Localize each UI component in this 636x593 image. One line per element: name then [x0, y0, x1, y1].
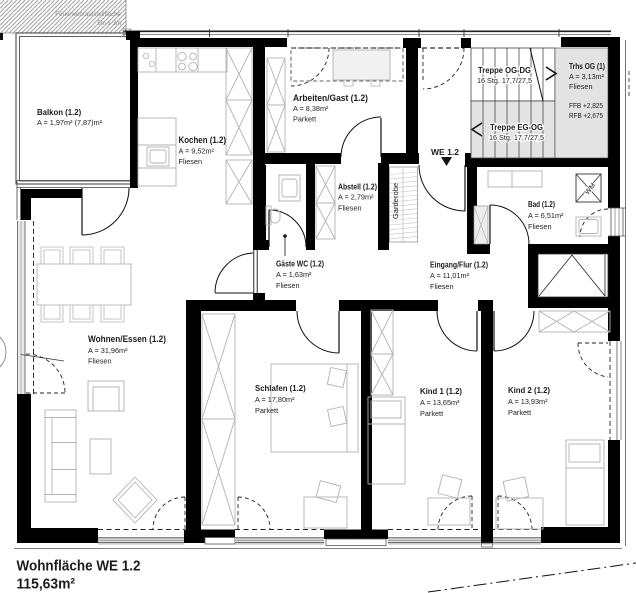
svg-text:Garderobe: Garderobe: [391, 183, 400, 219]
svg-text:A = 13,93m²: A = 13,93m²: [508, 397, 548, 406]
svg-text:Wohnen/Essen (1.2): Wohnen/Essen (1.2): [88, 334, 166, 345]
svg-text:Balkon (1.2): Balkon (1.2): [37, 108, 82, 117]
svg-text:Parkett: Parkett: [293, 115, 316, 124]
svg-text:Fliesen: Fliesen: [276, 281, 300, 290]
svg-text:Trhs OG (1): Trhs OG (1): [569, 62, 605, 71]
svg-text:A = 17,80m²: A = 17,80m²: [255, 395, 295, 404]
svg-text:Parkett: Parkett: [255, 406, 278, 415]
svg-text:Parkett: Parkett: [420, 409, 443, 418]
svg-text:Fliesen: Fliesen: [88, 357, 112, 366]
svg-text:16 Stg. 17,7/27,5: 16 Stg. 17,7/27,5: [489, 133, 544, 142]
svg-text:A = 2,79m²: A = 2,79m²: [338, 193, 374, 202]
svg-text:A = 1,63m²: A = 1,63m²: [276, 270, 312, 279]
svg-text:A = 8,38m²: A = 8,38m²: [293, 104, 329, 113]
svg-text:Treppe EG-OG: Treppe EG-OG: [490, 123, 543, 132]
svg-text:A = 13,65m²: A = 13,65m²: [420, 398, 460, 407]
svg-text:Kind 2 (1.2): Kind 2 (1.2): [508, 386, 550, 395]
svg-text:Fliesen: Fliesen: [569, 82, 593, 91]
svg-text:16 Stg. 17,7/27,5: 16 Stg. 17,7/27,5: [477, 76, 532, 85]
svg-text:A = 6,51m²: A = 6,51m²: [528, 211, 564, 220]
svg-text:Arbeiten/Gast (1.2): Arbeiten/Gast (1.2): [293, 93, 368, 104]
svg-text:Kind 1 (1.2): Kind 1 (1.2): [420, 387, 462, 396]
svg-text:Parkett: Parkett: [508, 408, 531, 417]
svg-text:Gäste WC (1.2): Gäste WC (1.2): [276, 260, 324, 269]
svg-text:5m x 3m: 5m x 3m: [97, 20, 121, 27]
svg-text:Eingang/Flur (1.2): Eingang/Flur (1.2): [430, 261, 488, 270]
svg-text:Fliesen: Fliesen: [528, 222, 552, 231]
svg-text:Feuerwehraufstellfläche: Feuerwehraufstellfläche: [55, 11, 121, 18]
svg-text:115,63m²: 115,63m²: [17, 576, 76, 593]
svg-text:A = 11,01m²: A = 11,01m²: [430, 271, 470, 280]
svg-text:A = 1,97m² (7,87)m²: A = 1,97m² (7,87)m²: [37, 118, 103, 127]
svg-text:Fliesen: Fliesen: [179, 157, 203, 166]
svg-text:Fliesen: Fliesen: [430, 282, 454, 291]
svg-text:Treppe OG-DG: Treppe OG-DG: [478, 66, 531, 75]
svg-text:Bad (1.2): Bad (1.2): [528, 200, 555, 209]
svg-text:Schlafen (1.2): Schlafen (1.2): [255, 384, 306, 393]
svg-text:A = 31,96m²: A = 31,96m²: [88, 346, 128, 355]
svg-text:WE 1.2: WE 1.2: [431, 147, 459, 157]
svg-text:Abstell (1.2): Abstell (1.2): [338, 183, 377, 192]
svg-text:Wohnfläche WE 1.2: Wohnfläche WE 1.2: [17, 558, 141, 575]
svg-text:FFB +2,825: FFB +2,825: [569, 101, 603, 110]
svg-text:A = 3,13m²: A = 3,13m²: [569, 72, 605, 81]
svg-text:Kochen (1.2): Kochen (1.2): [179, 135, 227, 146]
svg-text:A = 9,52m²: A = 9,52m²: [179, 147, 215, 156]
svg-text:Fliesen: Fliesen: [338, 204, 362, 213]
svg-text:RFB +2,675: RFB +2,675: [569, 111, 603, 120]
